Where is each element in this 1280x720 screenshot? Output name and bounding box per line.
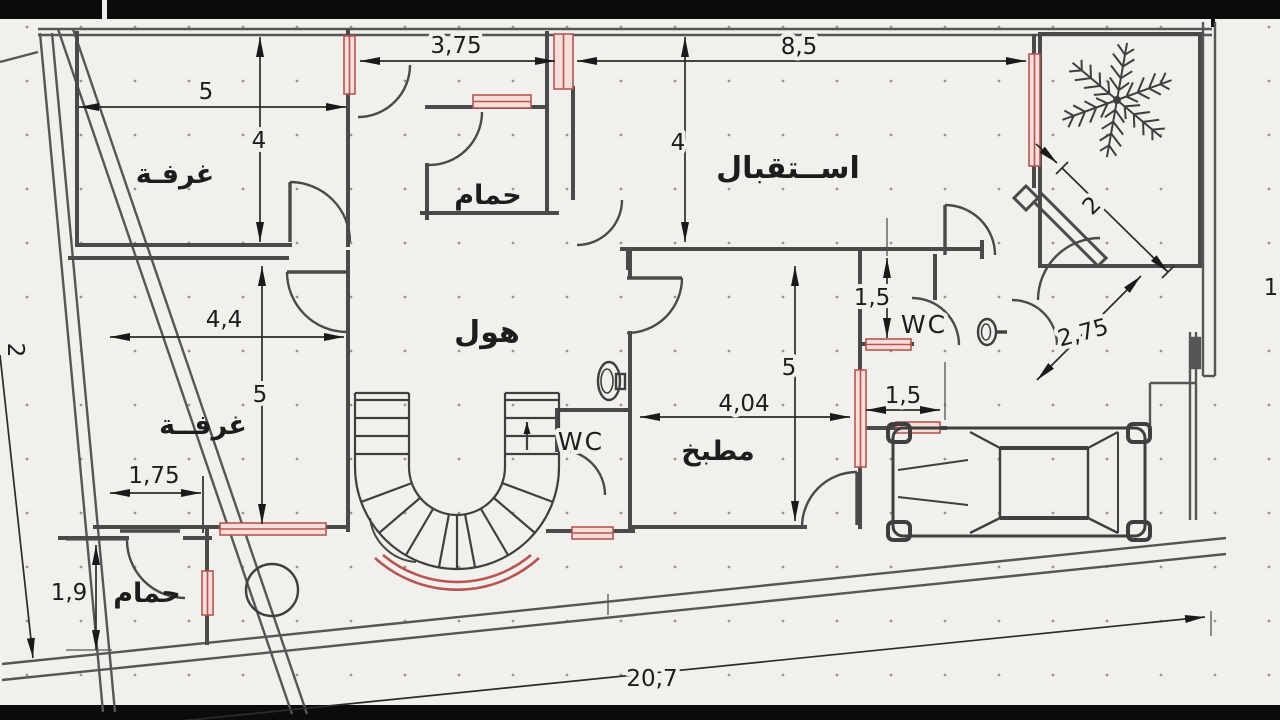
wc-right-label: WC: [901, 310, 947, 339]
window-marker: [855, 370, 866, 467]
room-label-bath-top: حمام: [454, 180, 522, 211]
room-label-kitchen: مطبخ: [681, 436, 755, 467]
room-label-top-left: غرفـة: [136, 159, 215, 190]
dim-wc-right: 1,5: [854, 285, 891, 311]
dim-kitchen-width: 4,04: [718, 391, 769, 417]
window-marker: [1029, 54, 1040, 166]
dim-reception-height: 4: [671, 130, 686, 156]
dim-room1-height: 4: [252, 128, 267, 154]
window-marker: [473, 95, 531, 108]
room-label-reception: اســتقبال: [716, 151, 860, 186]
window-marker: [554, 34, 573, 89]
window-marker: [344, 36, 355, 94]
window-marker: [220, 523, 326, 535]
room-label-mid-left: غرفــة: [159, 410, 247, 441]
dim-closet: 1,75: [128, 463, 179, 489]
dim-passage: 1,5: [885, 383, 922, 409]
room-label-hall: هول: [454, 315, 520, 350]
window-marker: [572, 527, 613, 539]
dim-left-edge: 2: [2, 343, 28, 358]
dim-right-side: 1: [1264, 275, 1279, 301]
window-marker: [202, 571, 213, 615]
floor-plan-svg: غرفـة حمام اســتقبال هول غرفــة مطبخ حما…: [0, 0, 1280, 720]
dot-grid: [0, 0, 1280, 720]
dim-plot-width: 20,7: [626, 666, 677, 692]
dim-room2-width: 4,4: [206, 307, 243, 333]
dim-reception-width: 8,5: [781, 34, 818, 60]
dim-room2-height: 5: [253, 382, 268, 408]
dim-kitchen-height: 5: [782, 355, 797, 381]
floor-plan-screenshot: غرفـة حمام اســتقبال هول غرفــة مطبخ حما…: [0, 0, 1280, 720]
dim-bath2-height: 1,9: [51, 580, 88, 606]
window-marker: [866, 339, 911, 350]
wc-center-label: WC: [558, 427, 604, 456]
dim-entry-width: 3,75: [430, 33, 481, 59]
room-label-bath-bottom: حمام: [113, 578, 181, 609]
dim-room1-width: 5: [199, 79, 214, 105]
